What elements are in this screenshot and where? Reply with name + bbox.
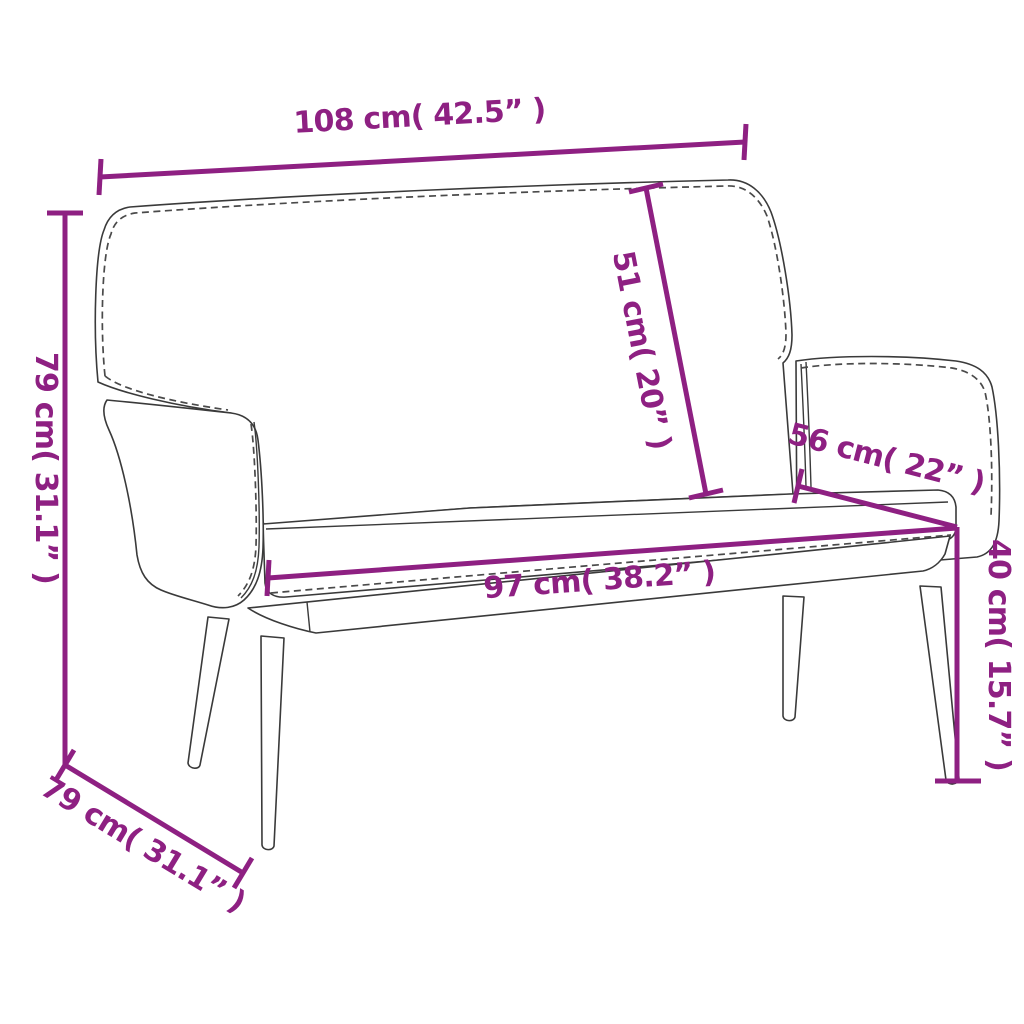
leg-rear-left — [188, 617, 229, 768]
dim-seat-height-label: 40 cm( 15.7” ) — [981, 539, 1016, 771]
dim-overall-width-tick-right — [744, 124, 746, 160]
leg-front-left — [261, 636, 284, 850]
left-armrest — [104, 400, 263, 608]
dim-overall-width: 108 cm( 42.5” ) — [99, 92, 746, 195]
dim-overall-width-label: 108 cm( 42.5” ) — [293, 92, 547, 141]
dim-overall-depth: 79 cm( 31.1” ) — [35, 765, 252, 920]
bench-line-drawing — [95, 180, 999, 850]
dimension-diagram: 108 cm( 42.5” ) 79 cm( 31.1” ) 51 cm( 20… — [0, 0, 1024, 1024]
dim-overall-depth-label: 79 cm( 31.1” ) — [35, 770, 252, 920]
dim-overall-width-tick-left — [99, 159, 101, 195]
dim-overall-height: 79 cm( 31.1” ) — [28, 213, 83, 780]
leg-rear-right — [783, 596, 804, 721]
dim-overall-height-label: 79 cm( 31.1” ) — [28, 352, 63, 584]
bench-dimension-drawing: 108 cm( 42.5” ) 79 cm( 31.1” ) 51 cm( 20… — [0, 0, 1024, 1024]
leg-front-right — [920, 586, 959, 784]
dim-overall-width-line — [100, 142, 745, 177]
dim-seat-width-tick-left — [267, 560, 269, 596]
